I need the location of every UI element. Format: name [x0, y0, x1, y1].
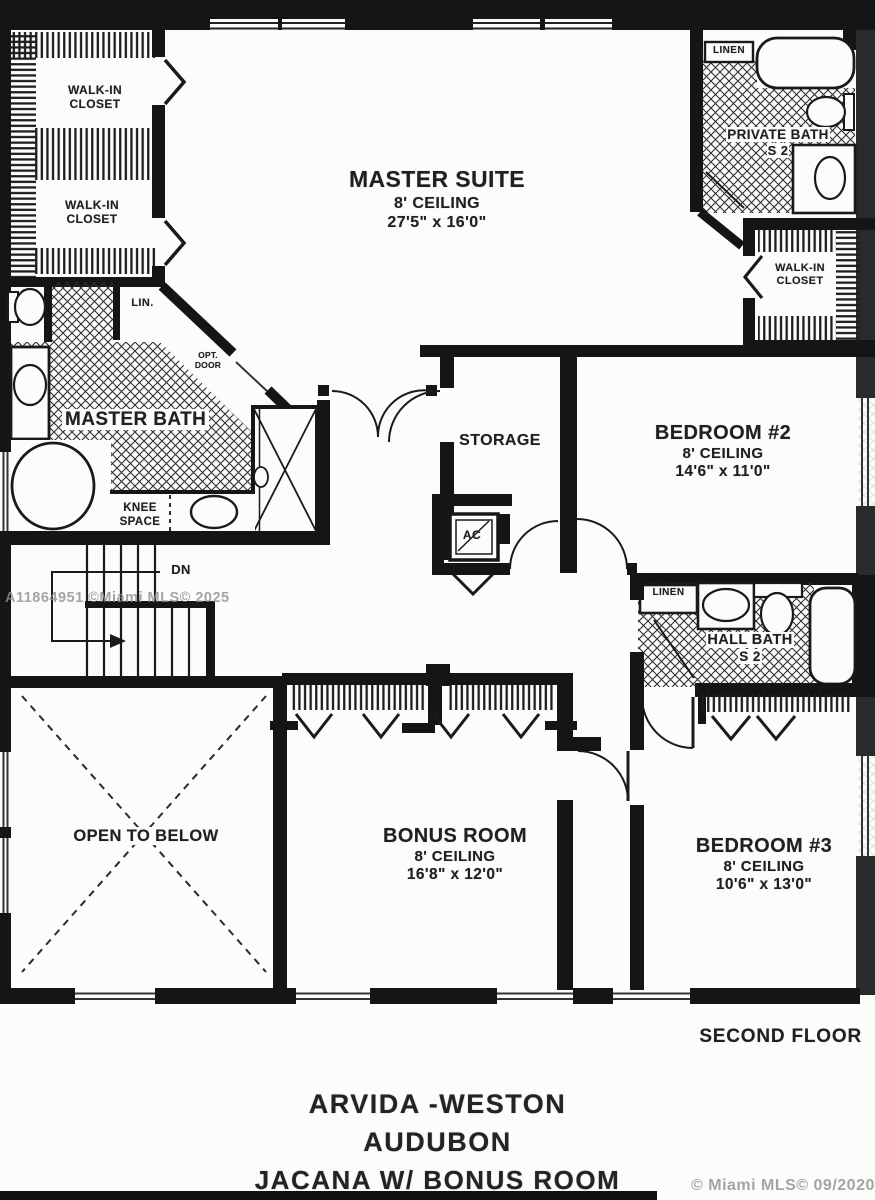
closet-shelving: [448, 685, 553, 710]
closet-door-swing: [165, 60, 184, 104]
linen-label-private: LINEN: [703, 45, 755, 57]
floor-label: SECOND FLOOR: [640, 1026, 862, 1049]
door-swing: [578, 751, 628, 801]
bonus-room-label: BONUS ROOM 8' CEILING 16'8" x 12'0": [305, 824, 605, 885]
bifold-door: [503, 714, 539, 737]
bedroom-2-label: BEDROOM #2 8' CEILING 14'6" x 11'0": [573, 421, 873, 482]
walk-in-closet-1-label: WALK-IN CLOSET: [35, 83, 155, 112]
storage-label: STORAGE: [440, 431, 560, 450]
bifold-door: [757, 716, 795, 739]
scan-edge-bar: [0, 1191, 657, 1200]
bifold-door: [712, 716, 750, 739]
opt-door-label: OPT. DOOR: [186, 350, 230, 370]
ac-closet: [432, 494, 512, 594]
door-swing: [510, 521, 558, 569]
knee-space-label: KNEE SPACE: [110, 502, 170, 530]
mls-watermark-center: A11864951 ©Miami MLS© 2025: [5, 590, 230, 606]
room-ceiling: 8' CEILING: [287, 194, 587, 213]
bifold-door: [296, 714, 332, 737]
plan-title-builder: ARVIDA -WESTON: [0, 1089, 875, 1120]
sink: [815, 157, 845, 199]
walk-in-closets-left: [0, 30, 184, 287]
lin-label: LIN.: [120, 297, 165, 310]
closet-shelving: [292, 685, 426, 710]
closet-door-swing: [165, 221, 184, 265]
master-suite-label: MASTER SUITE 8' CEILING 27'5" x 16'0": [287, 166, 587, 232]
bathtub: [12, 443, 94, 529]
sink: [14, 365, 46, 405]
open-to-below-label: OPEN TO BELOW: [46, 827, 246, 847]
closet-shelving: [700, 694, 850, 712]
walk-in-closet-right-label: WALK-IN CLOSET: [758, 262, 842, 288]
opt-door-leaf: [236, 362, 268, 392]
bifold-door: [363, 714, 399, 737]
stair-arrow: [110, 634, 126, 648]
door-swing: [577, 519, 627, 569]
sink: [191, 496, 237, 528]
floor-plan-page: MASTER SUITE 8' CEILING 27'5" x 16'0" WA…: [0, 0, 875, 1200]
ac-label: AC: [450, 528, 494, 542]
dn-label: DN: [164, 562, 198, 578]
bonus-room: [270, 664, 577, 737]
shower: [253, 407, 317, 533]
private-bath-label: PRIVATE BATH S 2: [703, 127, 853, 159]
stairs: [52, 540, 215, 678]
bathtub: [757, 38, 854, 88]
door-swing: [642, 697, 693, 748]
sink: [703, 589, 749, 621]
toilet: [807, 94, 854, 130]
room-name: MASTER SUITE: [287, 166, 587, 194]
linen-label-hall: LINEN: [641, 587, 696, 599]
bifold-door: [453, 574, 493, 594]
master-suite-double-door: [318, 385, 437, 437]
room-dims: 27'5" x 16'0": [287, 213, 587, 232]
master-bath-label: MASTER BATH: [62, 409, 209, 432]
toilet: [8, 289, 45, 325]
walk-in-closet-2-label: WALK-IN CLOSET: [32, 198, 152, 227]
plan-title-community: AUDUBON: [0, 1127, 875, 1158]
bedroom-3-label: BEDROOM #3 8' CEILING 10'6" x 13'0": [614, 834, 875, 895]
hall-bath-label: HALL BATH S 2: [670, 632, 830, 667]
